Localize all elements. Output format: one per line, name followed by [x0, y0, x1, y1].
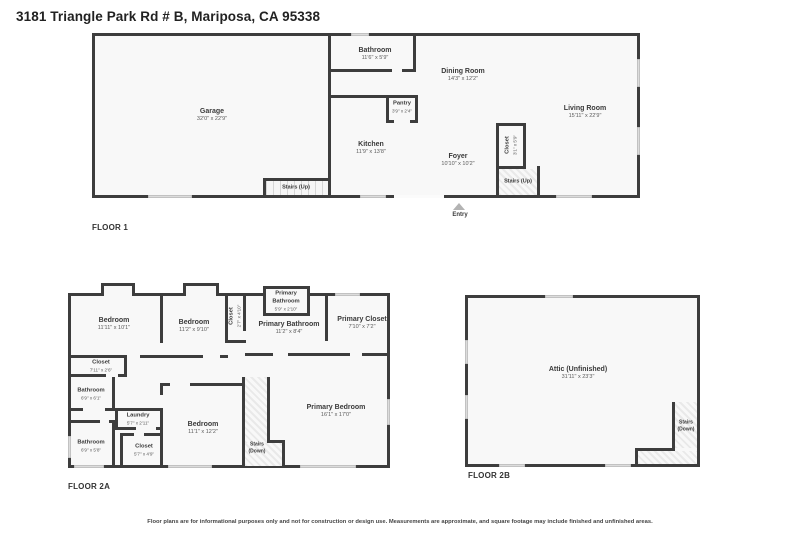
room-dims: 6'9" x 6'1" — [77, 395, 104, 401]
wall — [120, 433, 123, 466]
window-marker — [335, 293, 360, 296]
wall — [144, 433, 163, 436]
room-dims: 15'11" x 22'9" — [564, 113, 606, 120]
window-marker — [637, 59, 640, 87]
room-label-attic: Attic (Unfinished) 31'11" x 23'3" — [549, 365, 607, 381]
room-label-stairs-up-garage: Stairs (Up) — [282, 184, 310, 191]
room-label-primary-bathroom-small: Primary Bathroom 5'9" x 2'10" — [265, 290, 307, 311]
room-name: Bedroom — [98, 316, 130, 325]
window-marker — [300, 465, 356, 468]
wall — [160, 383, 163, 395]
wall — [225, 340, 246, 343]
wall — [496, 166, 526, 169]
room-name: Closet — [228, 305, 236, 328]
room-name: Closet — [504, 135, 512, 155]
room-name: Bathroom — [77, 439, 104, 447]
wall — [160, 408, 163, 468]
wall — [115, 408, 160, 411]
wall — [68, 355, 125, 358]
room-name: Foyer — [441, 152, 474, 161]
room-name: Living Room — [564, 104, 606, 113]
room-label-dining-room: Dining Room 14'3" x 12'2" — [441, 67, 485, 83]
wall — [112, 420, 115, 466]
floor-2b-label: FLOOR 2B — [468, 471, 510, 480]
wall — [156, 427, 160, 430]
wall — [362, 353, 390, 356]
room-dims: 2'7" x 4'10" — [236, 305, 242, 328]
wall — [523, 123, 526, 169]
room-name: Dining Room — [441, 67, 485, 76]
window-marker — [605, 464, 631, 467]
wall — [496, 123, 526, 126]
room-label-living-room: Living Room 15'11" x 22'9" — [564, 104, 606, 120]
wall — [160, 293, 163, 343]
room-dims: 16'1" x 17'0" — [307, 412, 366, 419]
room-dims: 11'1" x 12'2" — [188, 429, 219, 436]
wall — [245, 353, 273, 356]
wall — [115, 427, 136, 430]
room-dims: 5'7" x 2'11" — [127, 420, 150, 426]
room-name: Kitchen — [356, 140, 386, 149]
room-dims: 14'3" x 12'2" — [441, 76, 485, 83]
wall — [267, 377, 270, 443]
wall — [263, 178, 328, 181]
room-dims: 10'10" x 10'2" — [441, 161, 474, 168]
room-dims: 11'11" x 10'1" — [98, 325, 130, 332]
room-name: Attic (Unfinished) — [549, 365, 607, 374]
wall — [386, 95, 389, 123]
room-label-stairs-up-foyer: Stairs (Up) — [504, 178, 532, 185]
room-label-hall-closet: Closet 2'7" x 4'10" — [228, 305, 241, 328]
wall — [112, 377, 115, 411]
room-label-laundry: Laundry 5'7" x 2'11" — [127, 412, 150, 425]
floor-2a-label: FLOOR 2A — [68, 482, 110, 491]
room-dims: 7'10" x 7'2" — [337, 324, 386, 331]
wall — [243, 293, 246, 331]
room-label-primary-bathroom: Primary Bathroom 11'2" x 8'4" — [258, 320, 319, 336]
room-name: Garage — [197, 107, 227, 116]
wall-bump — [101, 283, 135, 296]
wall — [496, 169, 499, 198]
room-name: Closet — [134, 443, 154, 451]
window-marker — [637, 127, 640, 155]
wall — [68, 408, 83, 411]
wall — [115, 408, 118, 430]
wall — [140, 355, 203, 358]
wall — [328, 95, 418, 98]
window-marker — [545, 295, 573, 298]
room-label-bathroom-2: Bathroom 6'9" x 5'8" — [77, 439, 104, 452]
wall — [288, 353, 350, 356]
wall — [190, 383, 245, 386]
stairs-area — [638, 451, 697, 464]
window-marker — [74, 465, 104, 468]
room-dims: 5'7" x 4'9" — [134, 451, 154, 457]
floor-2a-plan: Bedroom 11'11" x 10'1" Bedroom 11'2" x 9… — [68, 281, 390, 468]
wall — [325, 293, 328, 341]
floor-2b-plan: Attic (Unfinished) 31'11" x 23'3" Stairs… — [465, 295, 700, 467]
room-label-bathroom-1: Bathroom 6'9" x 6'1" — [77, 387, 104, 400]
wall — [328, 69, 392, 72]
room-name: Primary Bathroom — [258, 320, 319, 329]
room-label-kitchen: Kitchen 11'9" x 13'8" — [356, 140, 386, 156]
room-dims: 5'9" x 2'10" — [265, 306, 307, 312]
wall — [328, 33, 331, 198]
room-dims: 3'9" x 2'4" — [392, 108, 412, 114]
window-marker — [465, 395, 468, 419]
wall — [537, 166, 540, 198]
floor-1-plan: Garage 32'0" x 22'9" Bathroom 11'6" x 5'… — [92, 33, 640, 198]
wall — [220, 355, 228, 358]
wall — [263, 178, 266, 198]
wall — [68, 420, 100, 423]
window-marker — [351, 33, 369, 36]
stairs-area — [245, 377, 267, 443]
floor-plan-page: 3181 Triangle Park Rd # B, Mariposa, CA … — [0, 0, 800, 533]
window-marker — [465, 340, 468, 364]
room-dims: 31'11" x 23'3" — [549, 374, 607, 381]
room-name: Closet — [90, 359, 112, 367]
room-dims: 6'9" x 5'8" — [77, 447, 104, 453]
room-label-closet: Closet 3'1" x 5'9" — [504, 135, 517, 155]
window-marker — [556, 195, 592, 198]
room-name: Pantry — [392, 100, 412, 108]
window-marker — [360, 195, 386, 198]
room-label-bathroom: Bathroom 11'6" x 5'9" — [358, 46, 391, 62]
room-label-garage: Garage 32'0" x 22'9" — [197, 107, 227, 123]
room-name: Primary Closet — [337, 315, 386, 324]
entry-marker-icon — [453, 203, 465, 210]
room-dims: 7'11" x 2'6" — [90, 367, 112, 373]
wall-bump — [183, 283, 219, 296]
room-label-closet-bottom: Closet 5'7" x 4'9" — [134, 443, 154, 456]
room-dims: 11'2" x 8'4" — [258, 329, 319, 336]
room-dims: 3'1" x 5'9" — [512, 135, 518, 155]
room-name: Primary Bedroom — [307, 403, 366, 412]
window-marker — [68, 436, 71, 458]
window-marker — [148, 195, 192, 198]
room-label-stairs-down: Stairs (Down) — [674, 420, 698, 433]
room-dims: 11'9" x 13'8" — [356, 149, 386, 156]
wall — [635, 448, 638, 467]
room-name: Bedroom — [179, 318, 210, 327]
room-label-bedroom-3: Bedroom 11'1" x 12'2" — [188, 420, 219, 436]
room-dims: 32'0" x 22'9" — [197, 116, 227, 123]
window-marker — [168, 465, 212, 468]
window-marker — [387, 399, 390, 425]
room-label-stairs-down: Stairs (Down) — [245, 442, 269, 455]
wall — [415, 95, 418, 123]
room-name: Bathroom — [77, 387, 104, 395]
room-name: Bedroom — [188, 420, 219, 429]
room-name: Bathroom — [358, 46, 391, 55]
window-marker — [499, 464, 525, 467]
wall — [496, 123, 499, 169]
room-label-primary-closet: Primary Closet 7'10" x 7'2" — [337, 315, 386, 331]
room-name: Laundry — [127, 412, 150, 420]
page-title: 3181 Triangle Park Rd # B, Mariposa, CA … — [16, 9, 320, 24]
wall — [386, 120, 394, 123]
wall — [68, 374, 106, 377]
floor-1-label: FLOOR 1 — [92, 223, 128, 232]
room-label-foyer: Foyer 10'10" x 10'2" — [441, 152, 474, 168]
entry-label: Entry — [452, 212, 467, 218]
room-label-primary-bedroom: Primary Bedroom 16'1" x 17'0" — [307, 403, 366, 419]
room-name: Primary Bathroom — [265, 290, 307, 306]
room-label-bedroom-2: Bedroom 11'2" x 9'10" — [179, 318, 210, 334]
disclaimer-text: Floor plans are for informational purpos… — [0, 519, 800, 525]
room-label-pantry: Pantry 3'9" x 2'4" — [392, 100, 412, 113]
wall — [118, 374, 127, 377]
room-dims: 11'6" x 5'9" — [358, 55, 391, 62]
room-dims: 11'2" x 9'10" — [179, 327, 210, 334]
entry-opening — [394, 195, 444, 198]
room-label-closet-top: Closet 7'11" x 2'6" — [90, 359, 112, 372]
wall — [635, 448, 675, 451]
wall — [413, 33, 416, 72]
room-label-bedroom-1: Bedroom 11'11" x 10'1" — [98, 316, 130, 332]
wall — [282, 440, 285, 468]
